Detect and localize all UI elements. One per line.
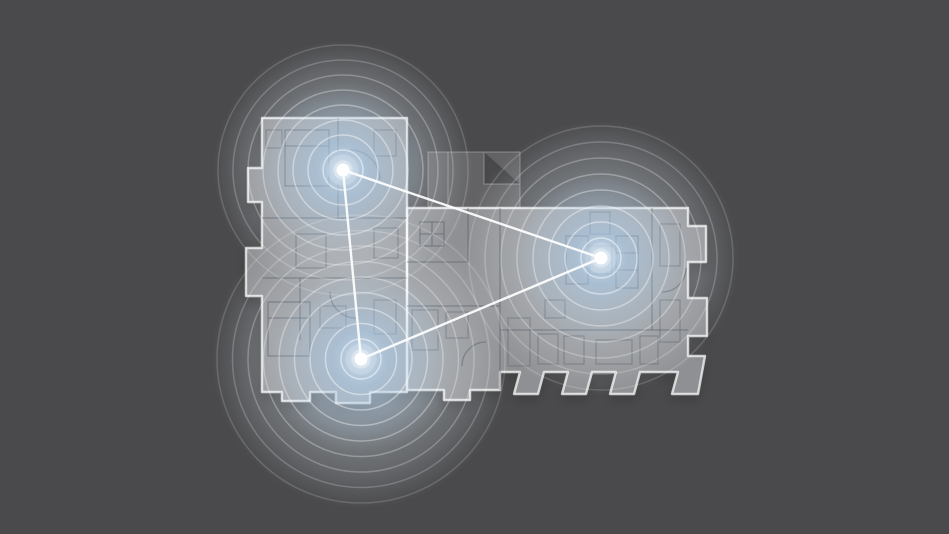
wifi-node-dot	[355, 353, 368, 366]
wifi-node-node-right	[585, 242, 616, 273]
wifi-node-dot	[595, 252, 608, 265]
mesh-coverage-canvas	[0, 0, 949, 534]
wifi-node-dot	[337, 164, 350, 177]
mesh-coverage-illustration	[0, 0, 949, 534]
wifi-node-node-bottom-left	[345, 343, 376, 374]
wifi-node-node-top-left	[327, 154, 358, 185]
